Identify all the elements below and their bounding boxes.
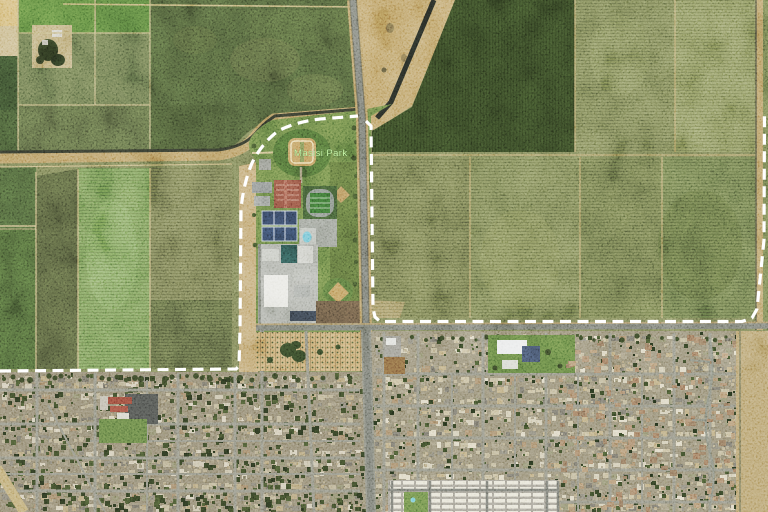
svg-text:Masisi Park: Masisi Park xyxy=(294,148,348,159)
